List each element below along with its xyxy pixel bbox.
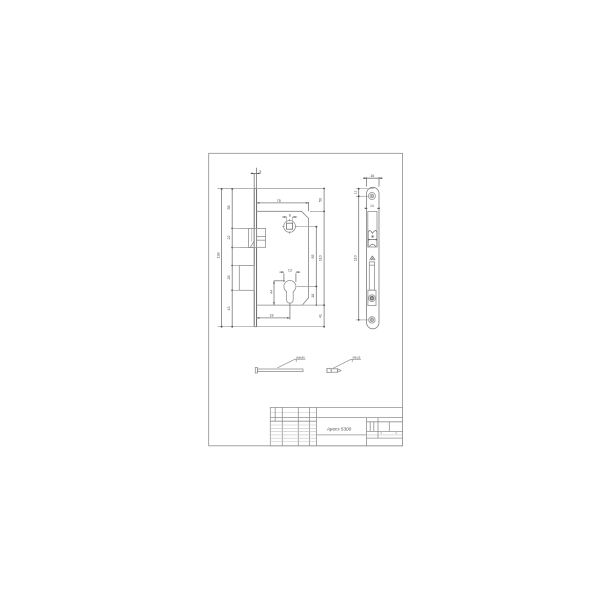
svg-text:Apecs 5300: Apecs 5300 <box>326 427 352 432</box>
svg-text:3: 3 <box>259 169 262 174</box>
svg-text:11: 11 <box>353 190 357 194</box>
svg-text:138: 138 <box>216 253 220 259</box>
svg-text:110: 110 <box>353 255 357 261</box>
svg-text:85: 85 <box>311 255 315 259</box>
svg-text:16: 16 <box>370 174 374 178</box>
svg-text:18: 18 <box>270 313 274 317</box>
svg-text:44: 44 <box>270 290 274 294</box>
svg-text:8x8x90: 8x8x90 <box>296 355 305 359</box>
svg-text:18: 18 <box>311 294 315 298</box>
svg-text:28: 28 <box>227 276 231 280</box>
svg-text:43: 43 <box>227 307 231 311</box>
svg-text:M5x25: M5x25 <box>353 356 361 360</box>
svg-text:58: 58 <box>227 206 231 210</box>
svg-text:75: 75 <box>277 199 281 203</box>
svg-text:50: 50 <box>319 198 323 202</box>
svg-text:14: 14 <box>370 204 374 208</box>
svg-text:110: 110 <box>319 255 323 261</box>
svg-text:8: 8 <box>289 213 291 217</box>
svg-text:41: 41 <box>319 314 323 318</box>
svg-text:13: 13 <box>288 268 292 272</box>
svg-text:22: 22 <box>227 236 231 240</box>
